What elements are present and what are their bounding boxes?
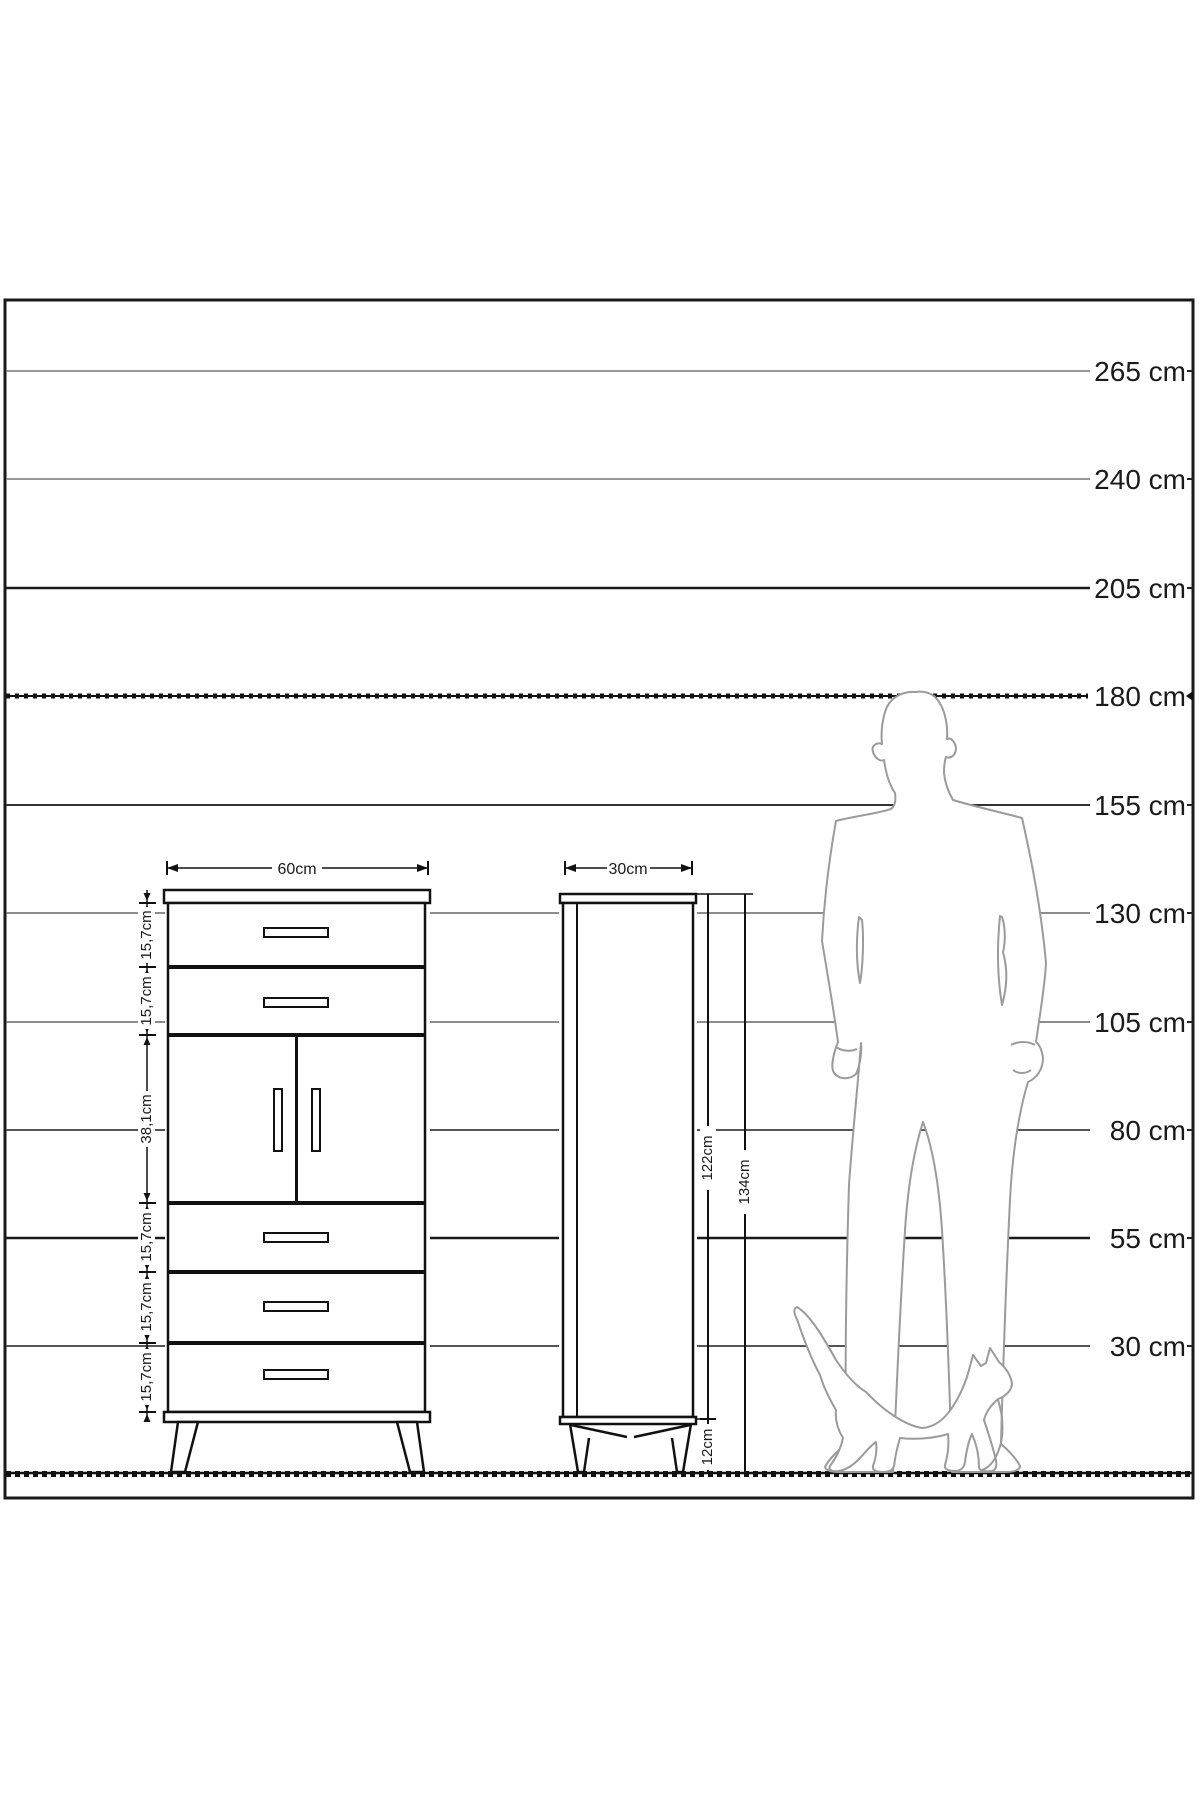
drawer-handle [264, 998, 328, 1007]
front-section-label: 38,1cm [138, 1094, 155, 1143]
side-bottom-panel [560, 1417, 696, 1424]
drawer-handle [264, 1302, 328, 1311]
side-body-height-label: 122cm [699, 1135, 716, 1180]
scale-label-105: 105 cm [1094, 1007, 1186, 1038]
cabinet-side-view [559, 888, 697, 1472]
door-handle [312, 1089, 320, 1151]
side-top-panel [560, 894, 696, 903]
scale-label-80: 80 cm [1110, 1115, 1186, 1146]
scale-label-180: 180 cm [1094, 681, 1186, 712]
front-bottom-panel [164, 1412, 430, 1422]
scale-label-30: 30 cm [1110, 1331, 1186, 1362]
side-leg-height-label: 12cm [699, 1429, 716, 1466]
door-handle [274, 1089, 282, 1151]
side-body [563, 903, 693, 1417]
front-section-label: 15,7cm [138, 910, 155, 959]
side-depth-label: 30cm [608, 861, 647, 878]
scale-label-205: 205 cm [1094, 573, 1186, 604]
cabinet-front-view [164, 888, 430, 1472]
drawer-handle [264, 1370, 328, 1379]
front-section-label: 15,7cm [138, 1282, 155, 1331]
scale-label-265: 265 cm [1094, 356, 1186, 387]
scale-label-130: 130 cm [1094, 898, 1186, 929]
dimension-diagram: 60cm 15,7cm 15,7cm 38,1cm 15,7cm 15,7cm … [0, 0, 1200, 1800]
front-section-label: 15,7cm [138, 1352, 155, 1401]
scale-label-240: 240 cm [1094, 464, 1186, 495]
drawer-handle [264, 928, 328, 937]
scale-label-55: 55 cm [1110, 1223, 1186, 1254]
front-section-label: 15,7cm [138, 976, 155, 1025]
front-section-label: 15,7cm [138, 1212, 155, 1261]
scale-label-155: 155 cm [1094, 790, 1186, 821]
front-width-label: 60cm [277, 861, 316, 878]
drawer-handle [264, 1233, 328, 1242]
front-top-panel [164, 890, 430, 903]
side-total-height-label: 134cm [736, 1159, 753, 1204]
